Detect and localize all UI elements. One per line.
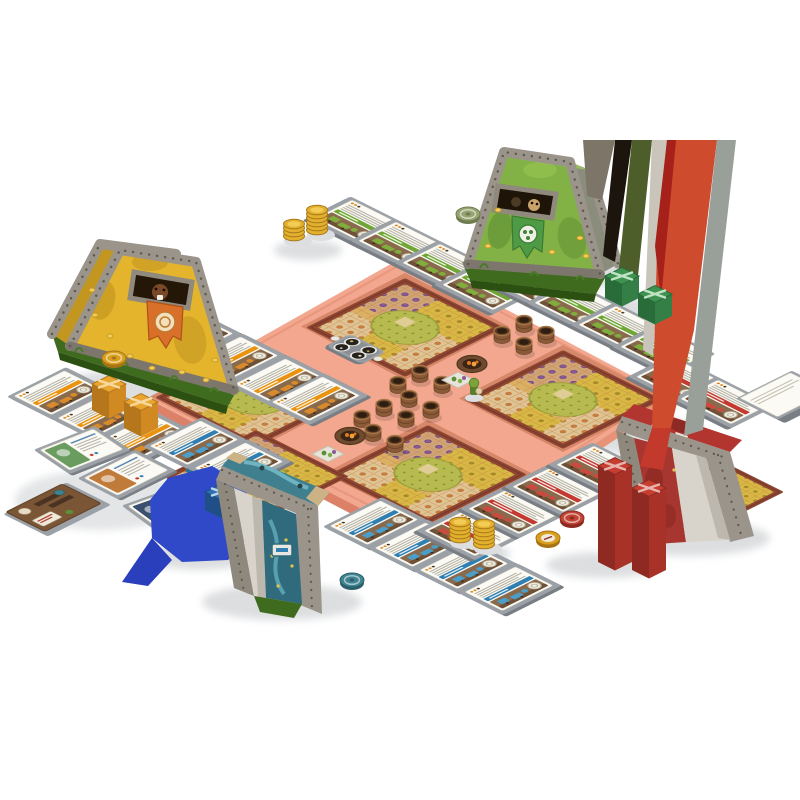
red-card-stack (598, 458, 632, 571)
gold-token (102, 351, 126, 368)
basket-token (515, 316, 535, 338)
compass-token (536, 531, 560, 548)
basket-token (375, 400, 395, 422)
basket-token (400, 391, 420, 413)
basket-token (397, 411, 417, 433)
critter-character (511, 197, 521, 207)
firepit-token (335, 428, 365, 445)
basket-token (386, 436, 406, 458)
basket-token (411, 366, 431, 388)
basket-token (515, 338, 535, 360)
green-token (456, 207, 480, 224)
red-card-stack (632, 480, 666, 579)
critter-character (528, 199, 540, 211)
tent-window-green (494, 186, 556, 218)
teal-token (340, 573, 364, 590)
basket-token (537, 327, 557, 349)
basket-token (422, 402, 442, 424)
basket-token (364, 425, 384, 447)
scene-svg (0, 0, 800, 800)
firepit-token (457, 356, 487, 373)
orange-card-stack (92, 376, 126, 419)
board-game-scene (0, 0, 800, 800)
orange-card-stack (124, 394, 158, 437)
red-token (560, 511, 584, 528)
basket-token (493, 327, 513, 349)
